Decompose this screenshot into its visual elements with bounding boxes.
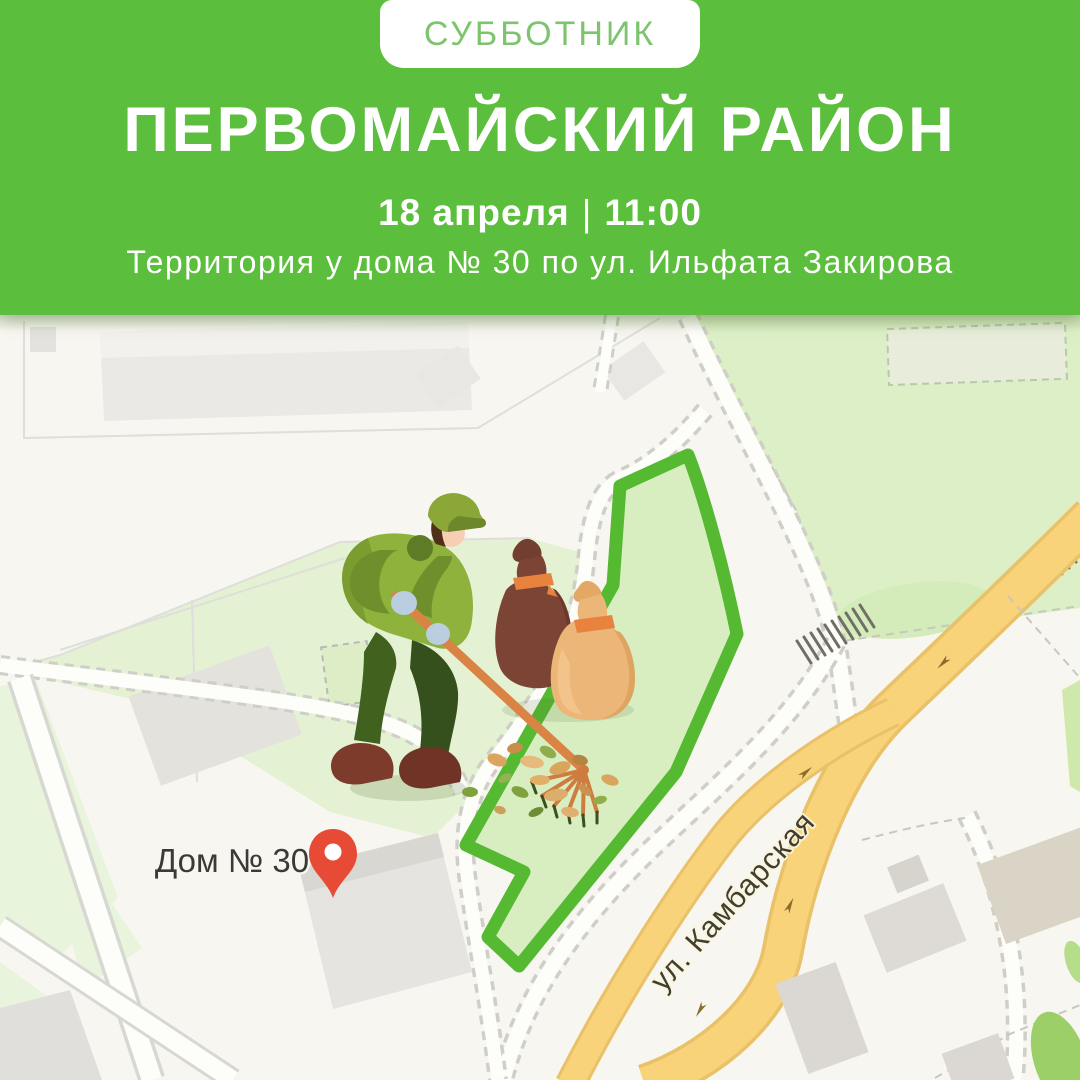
map-area: Дом № 30 ул. Камбарская: [0, 315, 1080, 1080]
event-datetime: 18 апреля|11:00: [0, 192, 1080, 234]
event-date: 18 апреля: [378, 192, 570, 233]
event-type-label: СУББОТНИК: [424, 15, 656, 54]
cleanup-event-poster: СУББОТНИК ПЕРВОМАЙСКИЙ РАЙОН 18 апреля|1…: [0, 0, 1080, 1080]
event-address: Территория у дома № 30 по ул. Ильфата За…: [0, 244, 1080, 281]
datetime-separator: |: [582, 193, 593, 235]
header-shadow-fade: [0, 315, 1080, 331]
glove-lower: [426, 623, 450, 645]
house-label: Дом № 30: [155, 842, 309, 879]
map-illustration: Дом № 30 ул. Камбарская: [0, 315, 1080, 1080]
hood: [407, 535, 433, 561]
event-type-badge: СУББОТНИК: [380, 0, 700, 68]
event-time: 11:00: [604, 192, 702, 233]
park-building: [887, 323, 1067, 385]
district-title: ПЕРВОМАЙСКИЙ РАЙОН: [0, 94, 1080, 166]
header-banner: СУББОТНИК ПЕРВОМАЙСКИЙ РАЙОН 18 апреля|1…: [0, 0, 1080, 315]
glove-upper: [391, 591, 417, 615]
